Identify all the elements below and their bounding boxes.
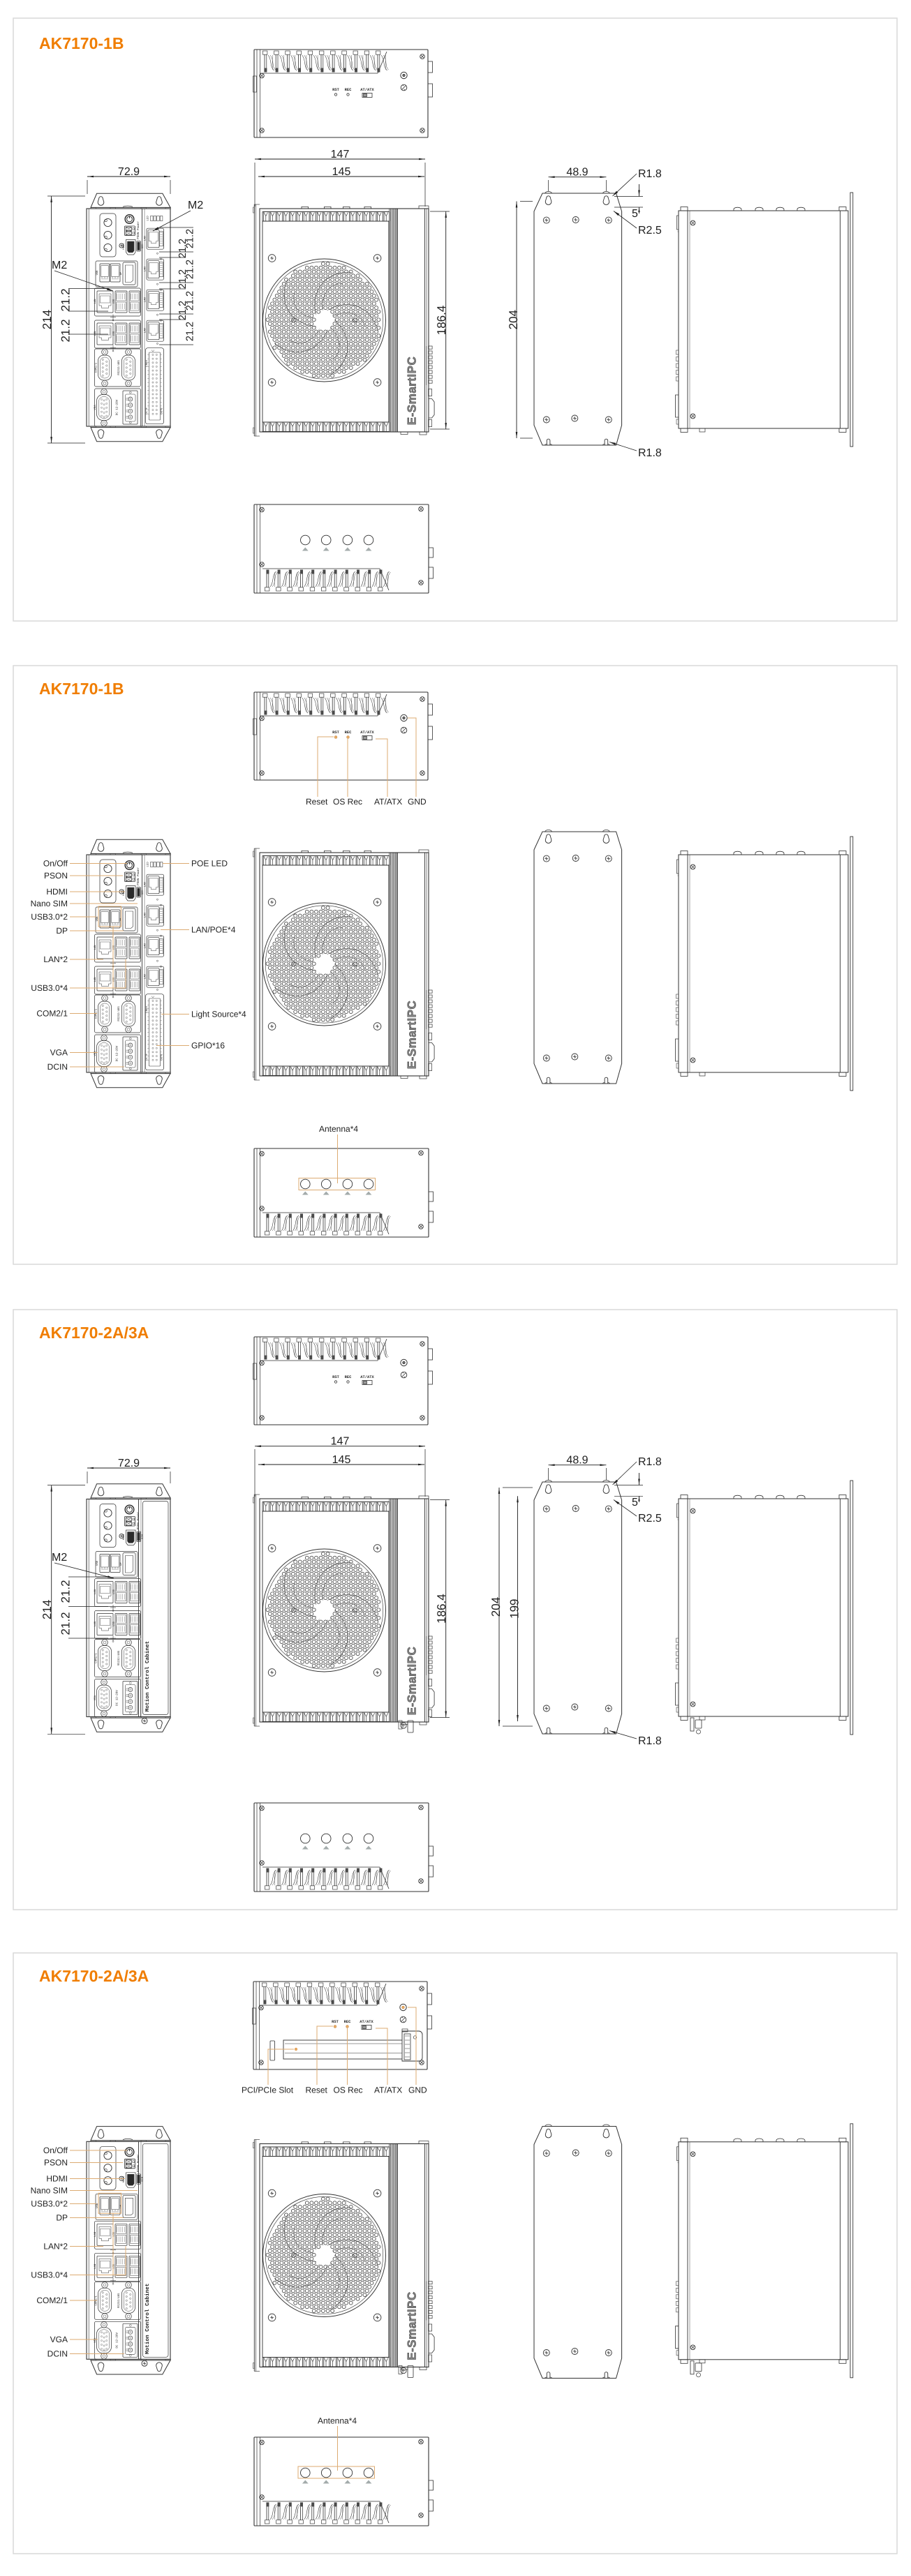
- svg-text:147: 147: [331, 149, 350, 160]
- svg-text:21.2: 21.2: [59, 288, 72, 311]
- svg-text:147: 147: [331, 1436, 350, 1448]
- svg-text:AK7170-2A/3A: AK7170-2A/3A: [39, 1324, 149, 1342]
- svg-text:Antenna*4: Antenna*4: [319, 1124, 358, 1134]
- svg-text:HDMI: HDMI: [46, 2174, 68, 2184]
- svg-text:21.2: 21.2: [177, 239, 188, 258]
- svg-text:145: 145: [332, 166, 351, 178]
- svg-text:VGA: VGA: [50, 2335, 68, 2344]
- svg-text:5: 5: [632, 1497, 638, 1508]
- svg-text:R2.5: R2.5: [638, 1513, 662, 1525]
- svg-text:Light Source*4: Light Source*4: [191, 1010, 246, 1019]
- svg-text:M2: M2: [52, 260, 67, 271]
- svg-text:GND: GND: [408, 2085, 427, 2095]
- svg-text:DP: DP: [56, 2213, 68, 2223]
- svg-text:AK7170-1B: AK7170-1B: [39, 680, 124, 698]
- svg-text:GND: GND: [408, 797, 427, 807]
- svg-text:AT/ATX: AT/ATX: [374, 2085, 402, 2095]
- svg-text:R1.8: R1.8: [638, 168, 662, 180]
- svg-text:USB3.0*4: USB3.0*4: [31, 2270, 68, 2280]
- svg-text:GPIO*16: GPIO*16: [191, 1041, 225, 1051]
- svg-text:21.2: 21.2: [177, 301, 188, 320]
- svg-text:LAN*2: LAN*2: [43, 2242, 68, 2252]
- svg-text:72.9: 72.9: [118, 1458, 140, 1469]
- svg-text:72.9: 72.9: [118, 166, 140, 178]
- svg-text:5: 5: [632, 208, 638, 220]
- svg-text:COM2/1: COM2/1: [36, 2296, 68, 2305]
- svg-text:USB3.0*4: USB3.0*4: [31, 983, 68, 993]
- svg-text:48.9: 48.9: [566, 167, 588, 179]
- svg-text:214: 214: [40, 310, 54, 329]
- svg-text:R1.8: R1.8: [638, 447, 662, 459]
- svg-text:AK7170-2A/3A: AK7170-2A/3A: [39, 1967, 149, 1985]
- svg-text:USB3.0*2: USB3.0*2: [31, 912, 68, 922]
- svg-text:AK7170-1B: AK7170-1B: [39, 34, 124, 52]
- svg-text:Nano SIM: Nano SIM: [31, 2186, 68, 2196]
- svg-text:VGA: VGA: [50, 1048, 68, 1058]
- svg-text:PSON: PSON: [44, 2158, 68, 2168]
- svg-text:21.2: 21.2: [59, 319, 72, 342]
- svg-text:Antenna*4: Antenna*4: [318, 2416, 357, 2426]
- svg-text:PCI/PCIe Slot: PCI/PCIe Slot: [242, 2085, 294, 2095]
- svg-text:LAN*2: LAN*2: [43, 954, 68, 964]
- svg-text:USB3.0*2: USB3.0*2: [31, 2199, 68, 2209]
- svg-text:DCIN: DCIN: [47, 1062, 68, 1072]
- svg-text:On/Off: On/Off: [43, 2146, 68, 2155]
- svg-text:21.2: 21.2: [59, 1612, 72, 1635]
- svg-text:R1.8: R1.8: [638, 1456, 662, 1468]
- svg-text:R2.5: R2.5: [638, 225, 662, 237]
- svg-text:214: 214: [40, 1600, 54, 1619]
- svg-text:COM2/1: COM2/1: [36, 1009, 68, 1019]
- svg-text:Reset: Reset: [306, 797, 328, 807]
- svg-text:PSON: PSON: [44, 871, 68, 881]
- svg-text:LAN/POE*4: LAN/POE*4: [191, 925, 236, 935]
- svg-text:AT/ATX: AT/ATX: [374, 797, 402, 807]
- svg-text:186.4: 186.4: [435, 1594, 448, 1624]
- svg-text:POE LED: POE LED: [191, 859, 228, 869]
- svg-text:M2: M2: [188, 200, 203, 211]
- svg-text:R1.8: R1.8: [638, 1735, 662, 1747]
- svg-text:21.2: 21.2: [184, 322, 195, 341]
- svg-text:21.2: 21.2: [177, 269, 188, 289]
- svg-text:48.9: 48.9: [566, 1455, 588, 1467]
- svg-text:OS Rec: OS Rec: [334, 2085, 363, 2095]
- svg-text:204: 204: [507, 310, 520, 329]
- svg-text:DP: DP: [56, 926, 68, 936]
- svg-text:204: 204: [489, 1597, 503, 1617]
- svg-text:199: 199: [508, 1599, 521, 1619]
- svg-text:145: 145: [332, 1454, 351, 1466]
- svg-text:21.2: 21.2: [59, 1580, 72, 1603]
- svg-text:Reset: Reset: [306, 2085, 328, 2095]
- svg-text:DCIN: DCIN: [47, 2349, 68, 2359]
- svg-text:HDMI: HDMI: [46, 887, 68, 897]
- svg-text:M2: M2: [52, 1552, 67, 1564]
- svg-text:186.4: 186.4: [435, 306, 448, 336]
- svg-text:On/Off: On/Off: [43, 859, 68, 869]
- svg-text:Nano SIM: Nano SIM: [31, 899, 68, 908]
- svg-text:OS Rec: OS Rec: [333, 797, 362, 807]
